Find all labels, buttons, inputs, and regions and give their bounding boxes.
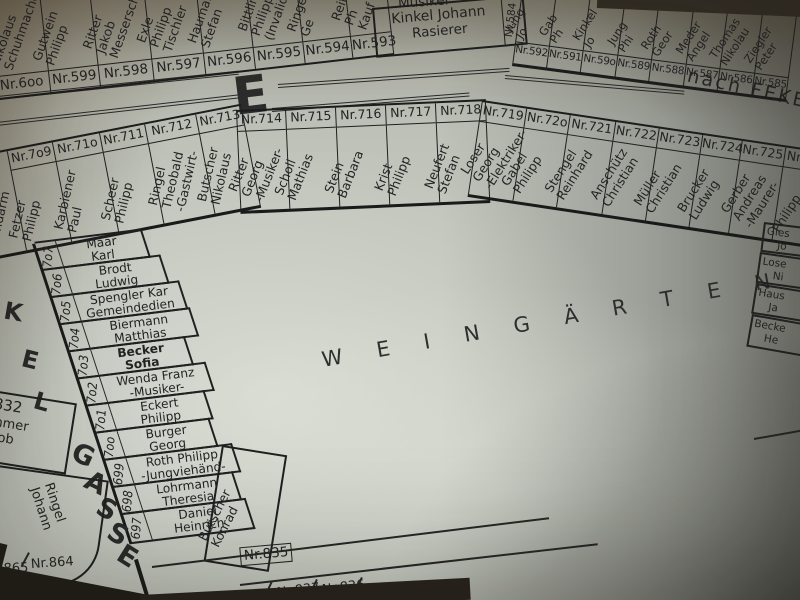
row2-middle: RitterGeorg-Musiker- Nr.714 SchollMathia… [236, 99, 490, 214]
plot-number: Nr.596 [204, 47, 255, 74]
row2-right: LoserGeorg-Elektriker- Nr.719 GabelPhili… [468, 100, 800, 247]
plot-number: Nr.723 [657, 129, 702, 155]
plot-number: 832 [0, 395, 24, 417]
plot-number: 7oo [101, 435, 117, 460]
plot-number: Nr.722 [613, 122, 658, 148]
plot-number: Nr.712 [145, 115, 199, 144]
plot-number: 7o2 [84, 380, 100, 405]
map-photo: E nach FEKETI HögelNikolausSchuhmacher N… [0, 0, 800, 600]
plot-number: Nr.7o9 [8, 143, 56, 171]
top-row-right: JungJo Nr.592 GabPh Nr.591 KinkelJo Nr.5… [512, 0, 800, 102]
plot-number: Nr.71o [53, 133, 103, 162]
plot-number: Nr.588 [649, 59, 686, 85]
plot-owner: Ringel Johann [26, 481, 68, 533]
plot-owner: RingelTheobald-Gastwirt- [146, 143, 201, 213]
plot-number: Nr.587 [684, 64, 720, 90]
plot-number: 7o7 [40, 245, 56, 270]
plot-owner: Kinkel Johann Rasierer [374, 0, 505, 56]
plot-number: Nr.597 [152, 53, 205, 81]
top-row-left: HögelNikolausSchuhmacher Nr.6oo GutweinP… [0, 0, 394, 102]
plot-number: Nr.591 [547, 46, 583, 72]
plot-number: Nr.589 [616, 55, 652, 81]
plot-number: Nr.598 [99, 59, 154, 87]
plot-number: Nr.595 [254, 41, 305, 68]
plot-number: Nr.864 [30, 554, 74, 572]
plot-number: 7o5 [57, 299, 73, 324]
area-label-weingarten: W E I N G Ä R T E N [320, 267, 786, 372]
plot-box-east: BeckeHe [746, 314, 800, 358]
plot-number: Nr.716 [336, 105, 386, 127]
plot-number: Nr.72o [524, 109, 569, 135]
plot-number: Nr.711 [100, 125, 148, 153]
plot-number: Nr.717 [386, 103, 436, 125]
plot-number: 7o1 [93, 407, 109, 432]
plot-box-832: 832 einmer akob [0, 390, 77, 475]
plot-number: Nr.724 [700, 135, 742, 161]
plot-number: Nr.6oo [0, 70, 50, 98]
field-boundary-line [754, 429, 800, 440]
plot-number: Nr.721 [568, 115, 615, 141]
plot-number: 699 [110, 462, 126, 487]
plot-number: 7o4 [66, 326, 82, 351]
plot-number: 7o3 [75, 353, 91, 378]
plot-number: Nr.599 [49, 65, 100, 92]
plot-number: 7o6 [49, 272, 65, 297]
plot-box-kinkel: Kinkel Johann Rasierer Nr.584 [372, 0, 528, 58]
road-line [278, 68, 510, 88]
street-name-letter: E [19, 344, 42, 375]
street-name-letter: K [2, 297, 25, 328]
plot-number: Nr.585 [752, 73, 788, 99]
plot-number: Nr.715 [286, 108, 336, 130]
plot-number: Nr.59o [581, 50, 618, 76]
plot-number: Nr.714 [237, 110, 286, 132]
plot-number: Nr.592 [513, 41, 549, 67]
plot-number: Nr.586 [718, 68, 755, 94]
plot-number: Nr.7 [783, 148, 800, 172]
plot-number: Nr.594 [303, 36, 352, 63]
